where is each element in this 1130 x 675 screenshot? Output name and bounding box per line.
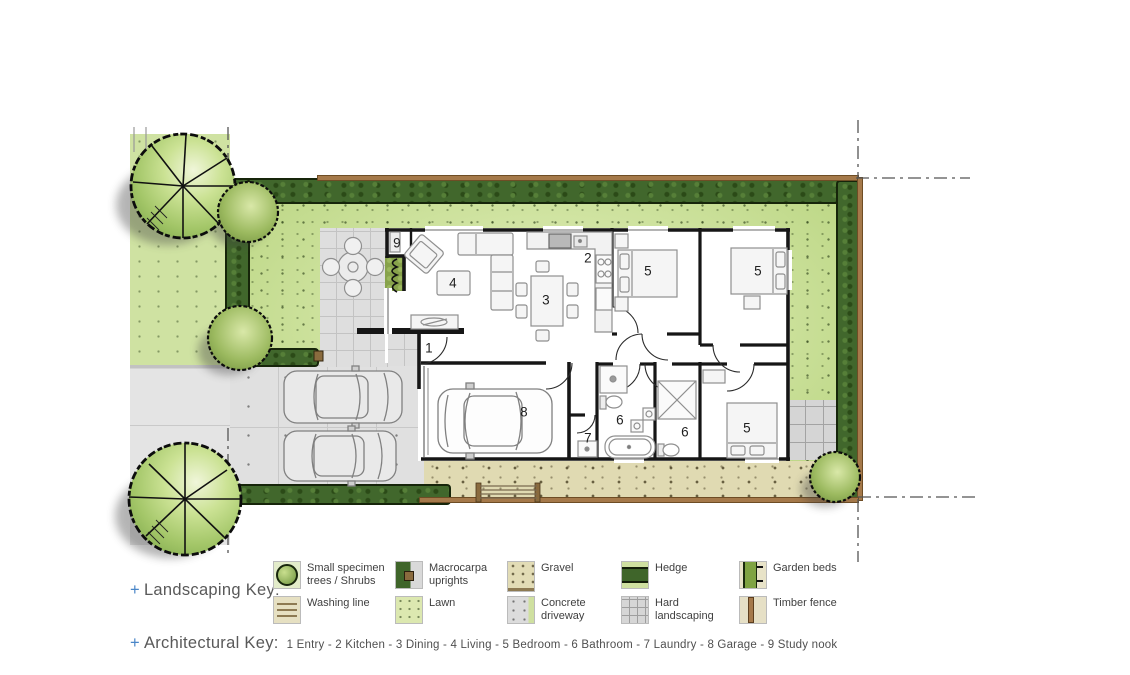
legend-item-label: Garden beds <box>773 562 837 575</box>
garden-beds-icon <box>740 562 766 588</box>
legend-item-label: Hedge <box>655 562 687 575</box>
legend-item-shrubs: Small specimen trees / Shrubs <box>274 562 396 591</box>
room-label-bedroom-1: 5 <box>644 264 652 279</box>
legend-item-label: Small specimen trees / Shrubs <box>307 562 389 588</box>
gravel-icon <box>508 562 534 591</box>
hard-landscaping-se <box>788 400 842 460</box>
site-plan-page: 1 2 3 4 5 5 5 6 6 7 8 9 +Landscaping Key… <box>0 0 1130 675</box>
room-label-kitchen: 2 <box>584 251 592 266</box>
legend-item-hard-landscaping: Hard landscaping <box>622 597 740 623</box>
legend-item-label: Macrocarpa uprights <box>429 562 508 588</box>
legend-item-label: Timber fence <box>773 597 837 610</box>
room-label-garage: 8 <box>520 405 528 420</box>
legend-item-label: Concrete driveway <box>541 597 622 623</box>
room-label-living: 4 <box>449 276 457 291</box>
plus-mark: + <box>130 634 140 652</box>
hedge-icon <box>622 562 648 588</box>
legend-item-label: Gravel <box>541 562 573 575</box>
concrete-driveway <box>230 363 426 489</box>
hard-landscaping-icon <box>622 597 648 623</box>
lawn-left-strip <box>130 134 230 365</box>
legend-item-label: Hard landscaping <box>655 597 737 623</box>
timber-fence-bottom <box>420 498 858 502</box>
hedge-driveway-south <box>237 486 449 503</box>
lawn-icon <box>396 597 422 623</box>
legend-item-hedge: Hedge <box>622 562 740 591</box>
entry-porch-paving <box>388 333 420 366</box>
legend-item-garden-beds: Garden beds <box>740 562 852 591</box>
legend-item-gravel: Gravel <box>508 562 622 591</box>
legend-item-macrocarpa: Macrocarpa uprights <box>396 562 508 591</box>
garden-bed-pocket <box>385 256 404 291</box>
hedge-right <box>838 182 858 498</box>
room-label-laundry: 7 <box>584 431 592 446</box>
architectural-key-title: +Architectural Key: <box>130 634 279 653</box>
concrete-driveway-icon <box>508 597 534 623</box>
house-lower-body <box>418 362 790 461</box>
hedge-courtyard-south <box>230 350 317 365</box>
plus-mark: + <box>130 581 140 599</box>
small-specimen-trees-icon <box>274 562 300 588</box>
legend-item-concrete-driveway: Concrete driveway <box>508 597 622 623</box>
hedge-left <box>227 180 248 366</box>
timber-fence-icon <box>740 597 766 623</box>
room-label-study-nook: 9 <box>393 236 401 251</box>
architectural-key-items: 1 Entry - 2 Kitchen - 3 Dining - 4 Livin… <box>287 639 838 651</box>
landscaping-key-grid: Small specimen trees / Shrubs Macrocarpa… <box>274 562 852 623</box>
house-upper-body <box>385 228 790 363</box>
room-label-bedroom-3: 5 <box>743 421 751 436</box>
legend-item-label: Lawn <box>429 597 455 610</box>
legend-item-timber-fence: Timber fence <box>740 597 852 623</box>
room-label-dining: 3 <box>542 293 550 308</box>
architectural-key: +Architectural Key: 1 Entry - 2 Kitchen … <box>130 634 837 653</box>
courtyard-hard-landscaping <box>320 228 388 367</box>
room-label-bathroom-1: 6 <box>616 413 624 428</box>
legend-item-washing-line: Washing line <box>274 597 396 623</box>
timber-fence-top <box>318 176 858 180</box>
room-label-bedroom-2: 5 <box>754 264 762 279</box>
timber-fence-right <box>858 178 862 500</box>
concrete-footpath <box>130 365 230 545</box>
legend-item-lawn: Lawn <box>396 597 508 623</box>
washing-line-icon <box>274 597 300 623</box>
room-label-bathroom-2: 6 <box>681 425 689 440</box>
macrocarpa-uprights-icon <box>396 562 422 588</box>
landscaping-key-title: +Landscaping Key: <box>130 581 280 600</box>
room-label-entry: 1 <box>425 341 433 356</box>
hedge-top <box>230 180 858 202</box>
gravel-strip <box>424 461 858 501</box>
legend-item-label: Washing line <box>307 597 370 610</box>
